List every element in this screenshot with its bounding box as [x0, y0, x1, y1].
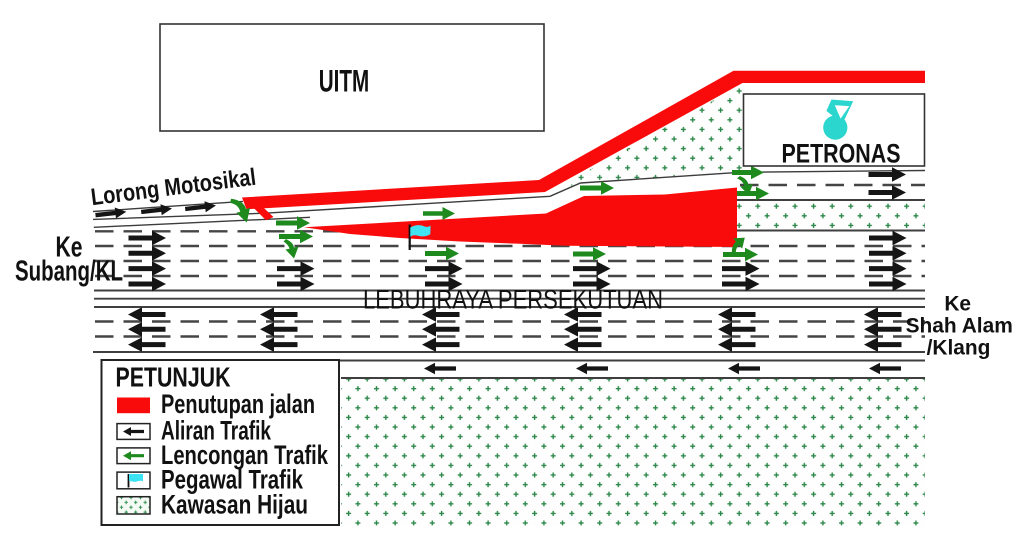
svg-text:Subang/KL: Subang/KL	[15, 255, 123, 287]
svg-text:Shah Alam: Shah Alam	[906, 315, 1013, 338]
svg-text:PETRONAS: PETRONAS	[782, 139, 901, 169]
svg-text:Kawasan Hijau: Kawasan Hijau	[161, 490, 308, 520]
svg-text:Ke: Ke	[944, 293, 971, 316]
svg-text:/Klang: /Klang	[927, 337, 991, 360]
svg-text:Penutupan jalan: Penutupan jalan	[161, 389, 315, 419]
svg-text:PETUNJUK: PETUNJUK	[116, 362, 231, 393]
svg-text:LEBUHRAYA PERSEKUTUAN: LEBUHRAYA PERSEKUTUAN	[363, 284, 663, 315]
svg-text:UITM: UITM	[319, 63, 370, 98]
